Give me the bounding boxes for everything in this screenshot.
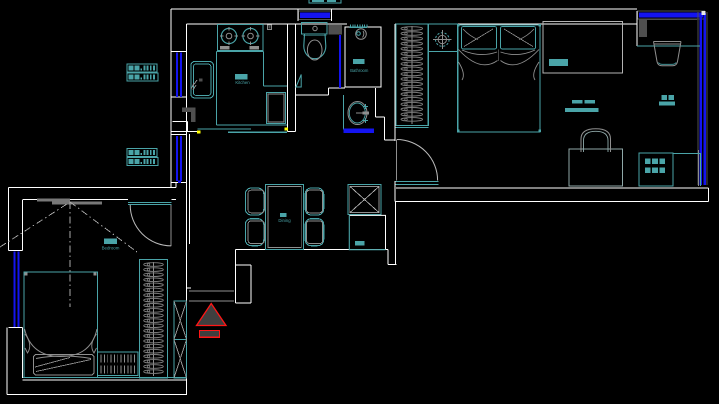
svg-text:Bathroom: Bathroom <box>350 68 369 73</box>
svg-text:Bedroom: Bedroom <box>102 245 120 250</box>
svg-text:Kitchen: Kitchen <box>235 80 250 85</box>
svg-text:Dining: Dining <box>278 218 291 223</box>
